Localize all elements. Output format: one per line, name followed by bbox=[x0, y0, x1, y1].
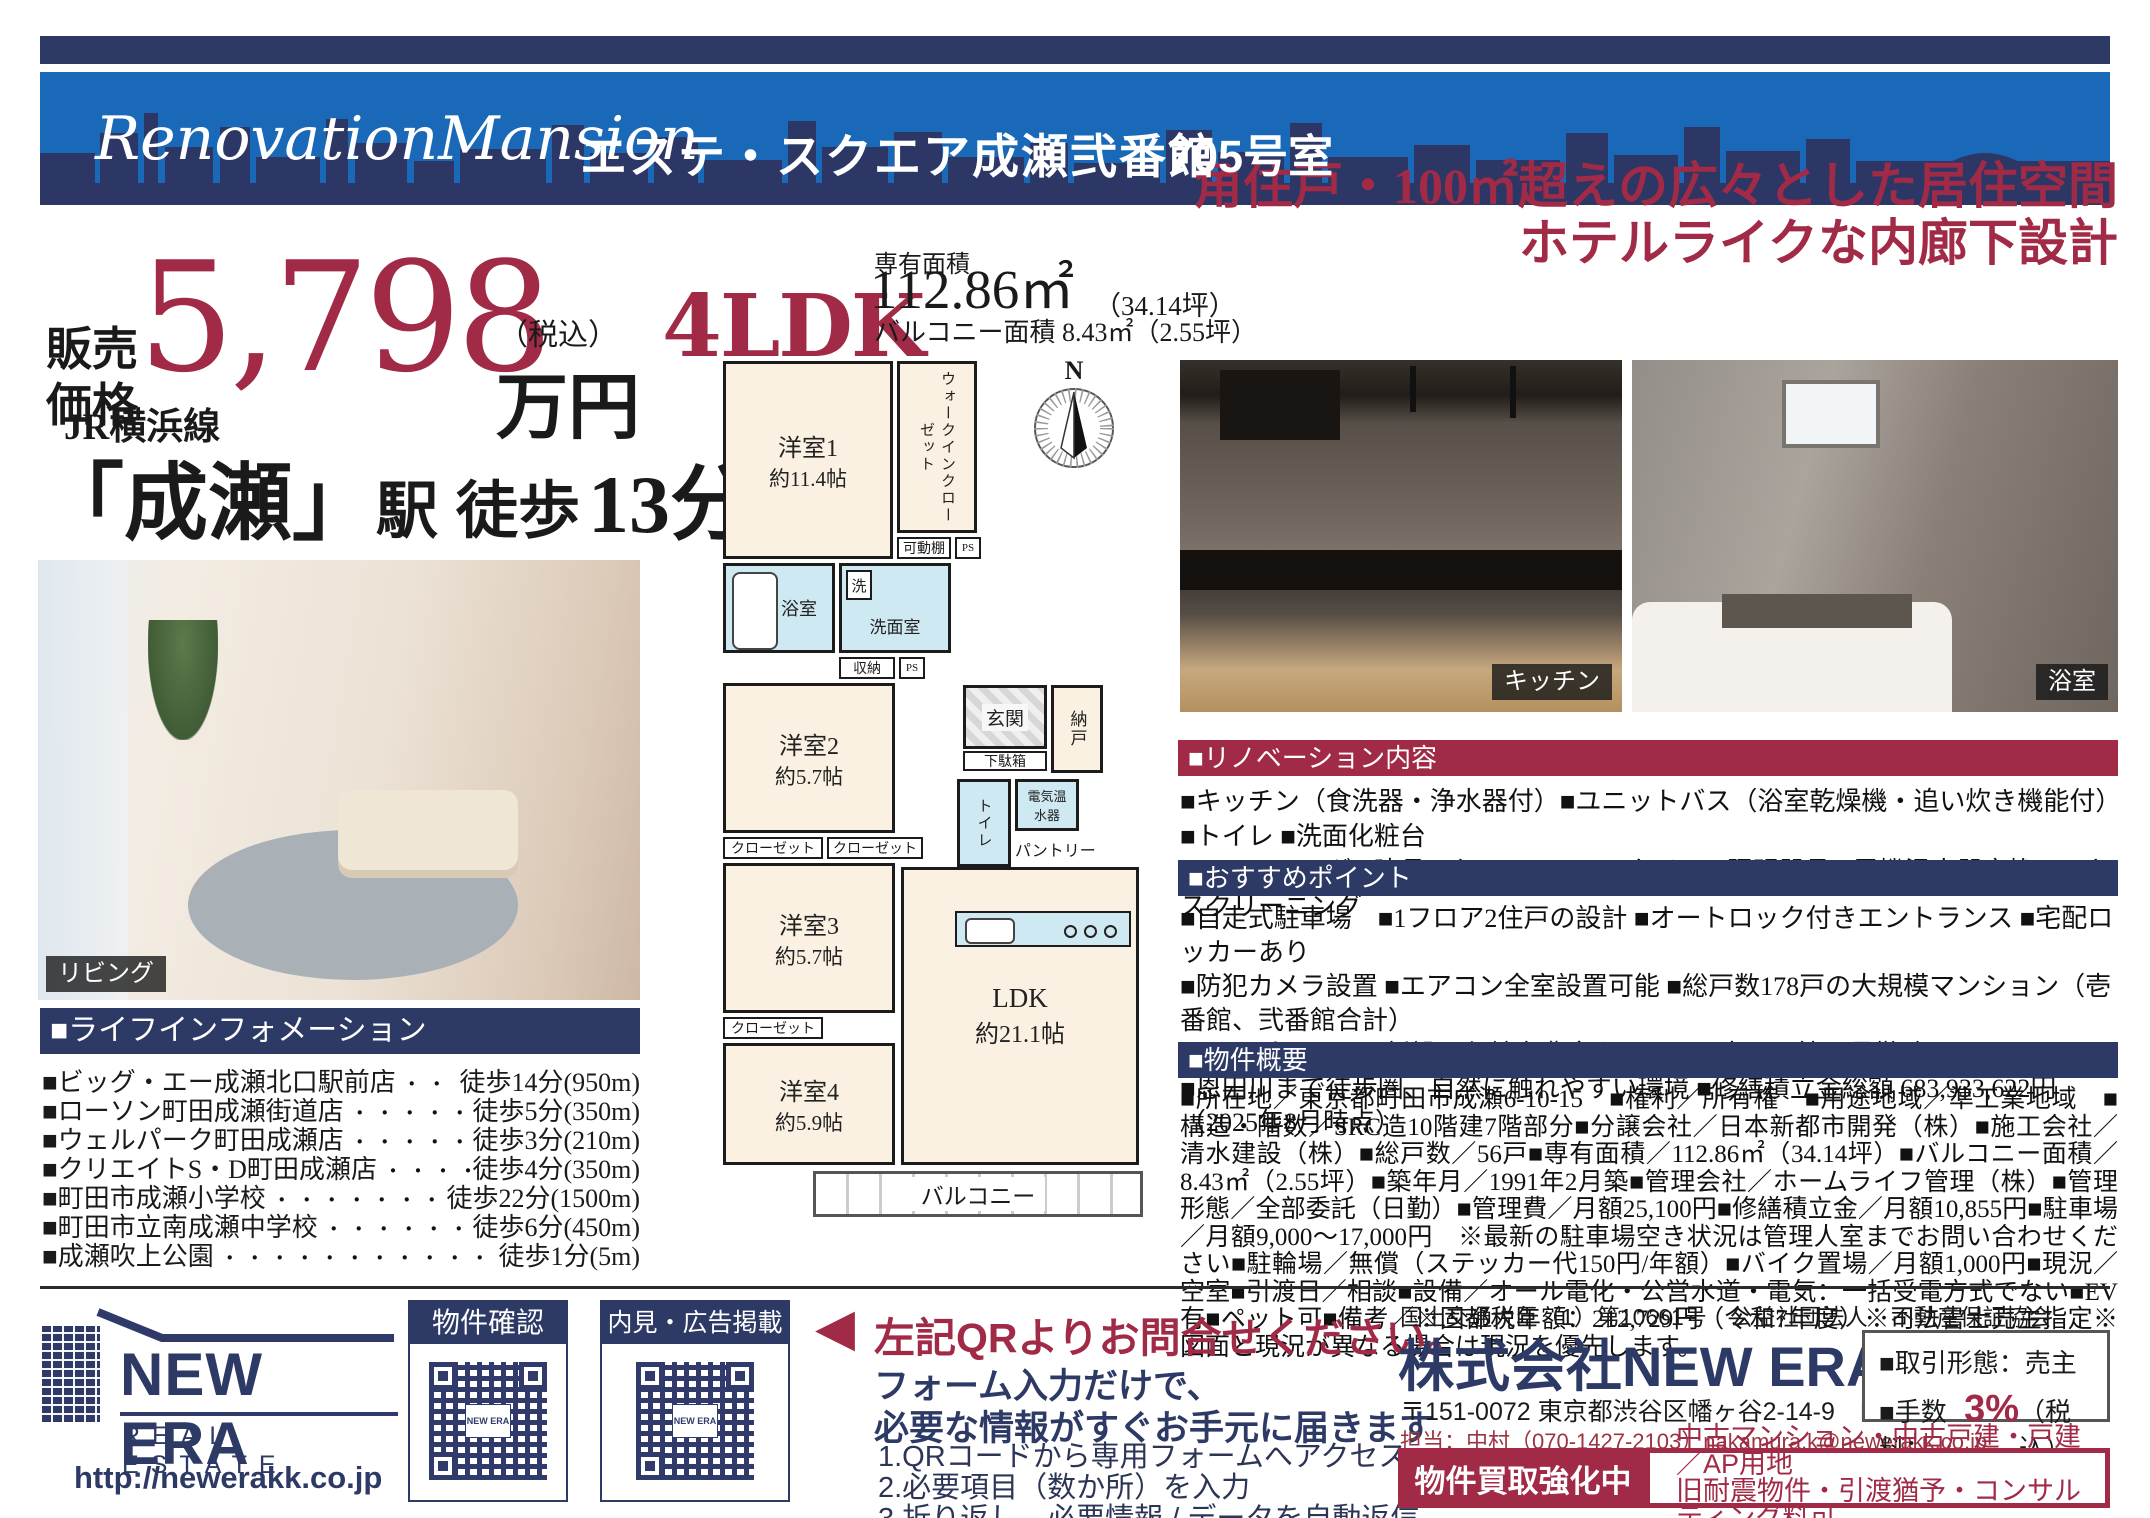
closet-chip: クローゼット bbox=[723, 837, 823, 859]
closet-chip: クローゼット bbox=[723, 1017, 823, 1039]
points-title: ■おすすめポイント bbox=[1188, 863, 1412, 893]
qr1-title: 物件確認 bbox=[410, 1302, 566, 1344]
life-info-title-bar: ■ライフインフォメーション bbox=[40, 1008, 640, 1054]
pantry-label: パントリー bbox=[1015, 837, 1096, 861]
life-info-row: ■ローソン町田成瀬街道店徒歩5分(350m) bbox=[42, 1091, 640, 1120]
flyer-page: RenovationMansion エステ・スクエア成瀬弐番館 705号室 販売… bbox=[0, 0, 2150, 1518]
qr-center-logo: NEW ERA bbox=[465, 1404, 511, 1438]
company-url: http://newerakk.co.jp bbox=[74, 1460, 382, 1496]
points-title-bar: ■おすすめポイント bbox=[1178, 860, 2118, 896]
qr-finder-icon bbox=[519, 1362, 547, 1390]
walk-in-closet: ウォークインクローゼット bbox=[897, 361, 977, 533]
building-name: エステ・スクエア成瀬弐番館 bbox=[580, 118, 1217, 187]
compass: N bbox=[1032, 356, 1116, 475]
footer-divider bbox=[40, 1286, 2110, 1289]
bath-towel bbox=[1722, 594, 1912, 628]
kitchen-counter bbox=[955, 911, 1131, 947]
room-number: 705号室 bbox=[1168, 120, 1333, 185]
counter-shadow bbox=[1180, 550, 1622, 590]
bath-window bbox=[1782, 380, 1880, 448]
washer-chip: 洗 bbox=[846, 570, 872, 600]
deal-terms-box: ■取引形態：売主 ■手数料： 3% （税込） bbox=[1862, 1330, 2110, 1422]
living-caption: リビング bbox=[46, 956, 166, 992]
company-logo: NEW ERA REAL ESTATE http://newerakk.co.j… bbox=[42, 1308, 402, 1498]
qr-finder-icon bbox=[636, 1362, 664, 1390]
ps-chip: PS bbox=[955, 537, 981, 559]
water-heater: 電気温水器 bbox=[1015, 779, 1079, 831]
price-amount: 5,798 bbox=[138, 242, 548, 394]
renovation-title-bar: ■リノベーション内容 bbox=[1178, 740, 2118, 776]
station-access: 「成瀬」 駅 徒歩 13分 bbox=[40, 436, 752, 557]
qr-code: NEW ERA bbox=[636, 1362, 754, 1480]
ps-chip: PS bbox=[899, 657, 925, 679]
plant bbox=[148, 620, 218, 740]
pendant-light bbox=[1510, 366, 1516, 418]
burner-icon bbox=[1104, 925, 1117, 938]
toilet: トイレ bbox=[957, 779, 1011, 867]
renovation-title: ■リノベーション内容 bbox=[1188, 743, 1437, 773]
sink-icon bbox=[965, 918, 1015, 944]
shoebox-chip: 下駄箱 bbox=[963, 751, 1047, 771]
purchase-detail-panel: 中古マンション・中古戸建・戸建／AP用地 旧耐震物件・引渡猶予・コンサルティング… bbox=[1650, 1453, 2105, 1503]
bath-caption: 浴室 bbox=[2036, 664, 2108, 700]
qr-box-property-check: 物件確認 NEW ERA bbox=[408, 1300, 568, 1502]
life-info-list: ■ビッグ・エー成瀬北口駅前店徒歩14分(950m) ■ローソン町田成瀬街道店徒歩… bbox=[42, 1062, 640, 1265]
header-top-strip bbox=[40, 36, 2110, 64]
qr-finder-icon bbox=[429, 1452, 457, 1480]
purchase-label: 物件買取強化中 bbox=[1398, 1448, 1648, 1508]
bathtub-icon bbox=[732, 572, 778, 650]
closet-chip: クローゼット bbox=[827, 837, 923, 859]
entrance: 玄関 bbox=[963, 685, 1047, 749]
qr-center-logo: NEW ERA bbox=[672, 1404, 718, 1438]
life-info-row: ■クリエイトS・D町田成瀬店徒歩4分(350m) bbox=[42, 1149, 640, 1178]
balcony-area: バルコニー面積 8.43㎡（2.55坪） bbox=[874, 312, 1257, 349]
deal-type: ■取引形態：売主 bbox=[1879, 1343, 2093, 1380]
overview-title: ■物件概要 bbox=[1188, 1045, 1308, 1075]
life-info-row: ■ビッグ・エー成瀬北口駅前店徒歩14分(950m) bbox=[42, 1062, 640, 1091]
dot-leader bbox=[214, 1242, 499, 1271]
living-photo: リビング bbox=[38, 560, 640, 1000]
headline-line2: ホテルライクな内廊下設計 bbox=[850, 215, 2118, 272]
company-name: 株式会社NEW ERA bbox=[1398, 1322, 1886, 1403]
qr-finder-icon bbox=[726, 1362, 754, 1390]
room4: 洋室4 約5.9帖 bbox=[723, 1043, 895, 1165]
cta-steps: 1.QRコードから専用フォームへアクセス 2.必要項目（数か所）を入力 3.折り… bbox=[878, 1442, 1419, 1518]
storage-chip: 収納 bbox=[839, 657, 895, 679]
burner-icon bbox=[1084, 925, 1097, 938]
compass-n-label: N bbox=[1032, 356, 1116, 386]
overview-title-bar: ■物件概要 bbox=[1178, 1042, 2118, 1078]
life-info-row: ■ウェルパーク町田成瀬店徒歩3分(210m) bbox=[42, 1120, 640, 1149]
powder-room: 洗 洗面室 bbox=[839, 563, 951, 653]
storage-room: 納戸 bbox=[1051, 685, 1103, 773]
bathroom: 浴室 bbox=[723, 563, 835, 653]
qr-finder-icon bbox=[429, 1362, 457, 1390]
qr-finder-icon bbox=[636, 1452, 664, 1480]
balcony: バルコニー bbox=[813, 1171, 1143, 1217]
station-eki: 駅 bbox=[376, 460, 438, 550]
dot-leader bbox=[396, 1068, 460, 1097]
qr2-title: 内見・広告掲載 bbox=[602, 1302, 788, 1344]
floor-plan: 洋室1 約11.4帖 ウォークインクローゼット 可動棚 PS 浴室 洗 洗面室 … bbox=[705, 355, 1155, 1220]
roofline-icon bbox=[42, 1308, 402, 1344]
room1: 洋室1 約11.4帖 bbox=[723, 361, 893, 559]
kitchen-photo: キッチン bbox=[1180, 360, 1622, 712]
range-hood bbox=[1220, 370, 1340, 440]
compass-icon bbox=[1032, 386, 1116, 470]
left-arrow-icon: ◀ bbox=[815, 1298, 855, 1358]
logo-rule bbox=[120, 1412, 398, 1416]
window-light bbox=[38, 560, 128, 1000]
bathroom-photo: 浴室 bbox=[1632, 360, 2118, 712]
purchase-banner: 物件買取強化中 中古マンション・中古戸建・戸建／AP用地 旧耐震物件・引渡猶予・… bbox=[1398, 1448, 2110, 1508]
qr-box-viewing-ad: 内見・広告掲載 NEW ERA bbox=[600, 1300, 790, 1502]
shelf-chip: 可動棚 bbox=[897, 537, 951, 559]
burner-icon bbox=[1064, 925, 1077, 938]
dot-leader bbox=[344, 1097, 473, 1126]
walk-label: 徒歩 bbox=[456, 460, 580, 550]
dot-leader bbox=[318, 1213, 473, 1242]
station-name: 「成瀬」 bbox=[40, 436, 376, 557]
life-info-title: ■ライフインフォメーション bbox=[50, 1014, 427, 1047]
room2: 洋室2 約5.7帖 bbox=[723, 683, 895, 833]
qr-code: NEW ERA bbox=[429, 1362, 547, 1480]
room3: 洋室3 約5.7帖 bbox=[723, 863, 895, 1013]
sofa bbox=[338, 790, 518, 870]
kitchen-caption: キッチン bbox=[1492, 664, 1612, 700]
cta-headline: 左記QRよりお問合せください。 bbox=[874, 1304, 1468, 1364]
pendant-light bbox=[1410, 366, 1416, 412]
